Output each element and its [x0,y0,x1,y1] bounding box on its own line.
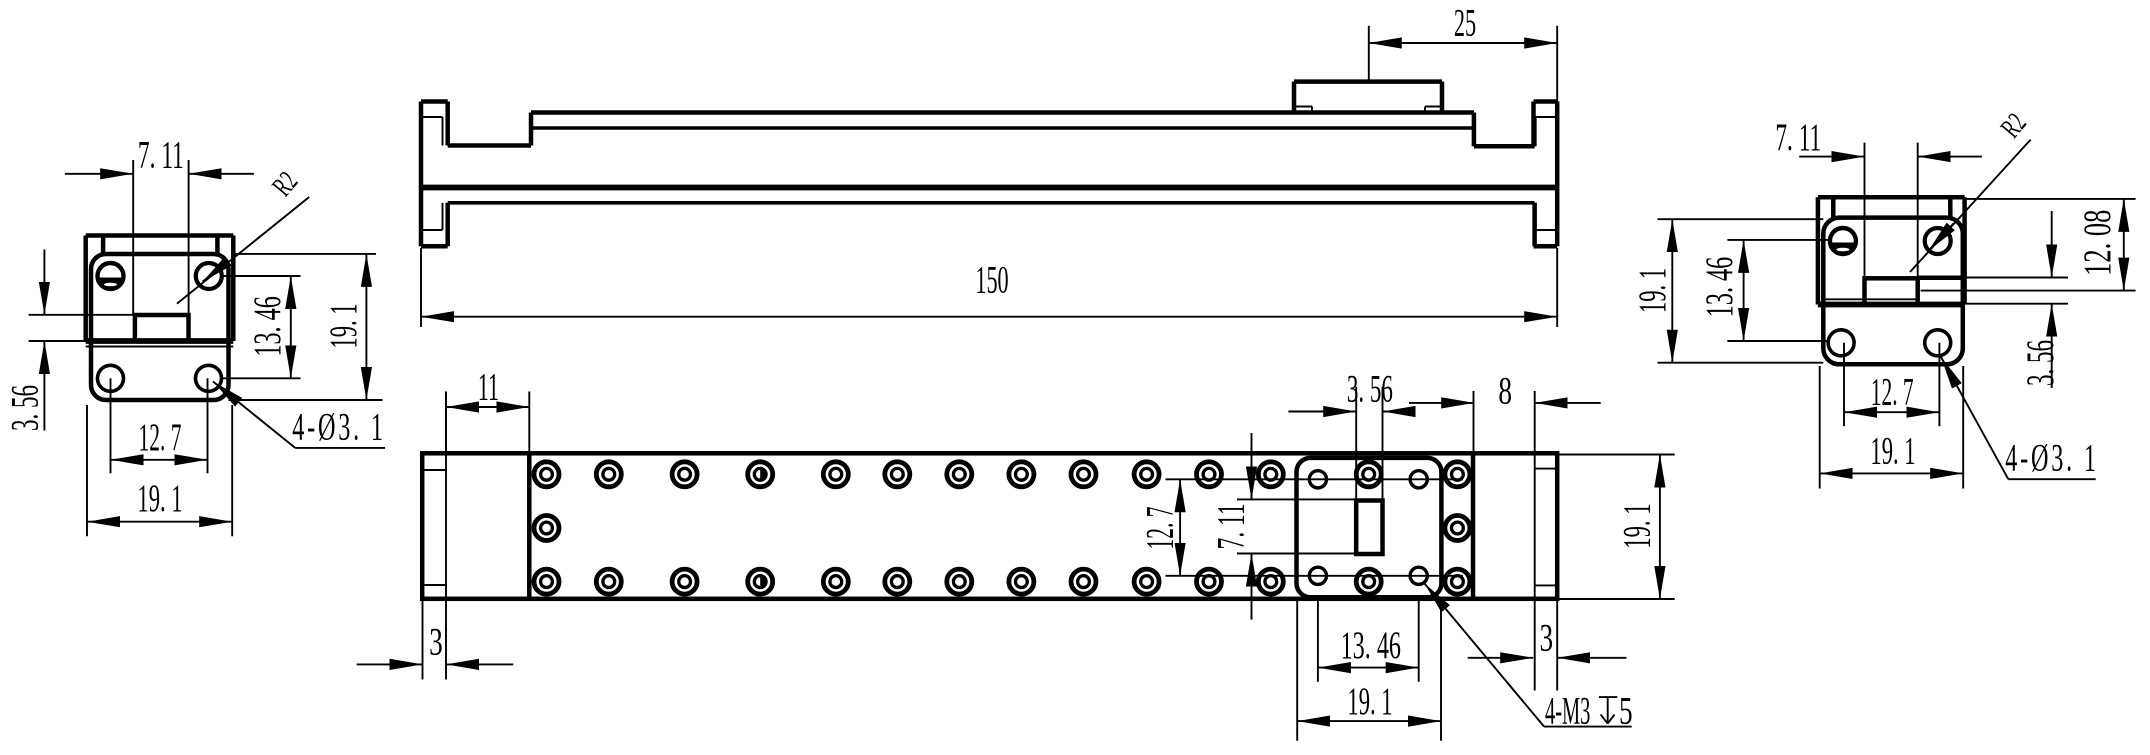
svg-text:3. 56: 3. 56 [1347,366,1393,410]
svg-text:19. 1: 19. 1 [137,477,182,520]
svg-text:12. 7: 12. 7 [139,415,182,458]
svg-text:150: 150 [975,258,1008,301]
svg-text:19. 1: 19. 1 [1615,503,1658,548]
svg-text:4-M3: 4-M3 [1545,688,1590,732]
svg-text:12. 7: 12. 7 [1138,507,1181,550]
svg-text:19. 1: 19. 1 [322,303,365,348]
svg-text:3: 3 [429,621,443,664]
svg-text:19. 1: 19. 1 [1347,680,1392,723]
svg-text:7. 11: 7. 11 [1208,503,1252,549]
svg-text:13. 46: 13. 46 [1698,257,1741,317]
svg-text:12. 08: 12. 08 [2076,210,2119,276]
svg-text:13. 46: 13. 46 [1341,624,1401,667]
svg-text:13. 46: 13. 46 [246,296,289,356]
svg-text:8: 8 [1498,370,1512,413]
svg-text:4-Ø3. 1: 4-Ø3. 1 [292,406,385,449]
svg-text:25: 25 [1454,1,1476,44]
svg-text:3: 3 [1539,617,1553,660]
svg-text:7. 11: 7. 11 [138,132,184,176]
svg-text:11: 11 [478,365,499,408]
svg-text:7. 11: 7. 11 [1775,115,1821,159]
svg-text:19. 1: 19. 1 [1631,268,1674,313]
svg-text:5: 5 [1619,690,1633,733]
svg-text:19. 1: 19. 1 [1870,429,1915,472]
svg-text:3. 56: 3. 56 [2,385,46,431]
svg-text:3. 56: 3. 56 [2018,340,2062,386]
svg-text:12. 7: 12. 7 [1871,370,1914,413]
svg-text:4-Ø3. 1: 4-Ø3. 1 [2005,437,2098,480]
